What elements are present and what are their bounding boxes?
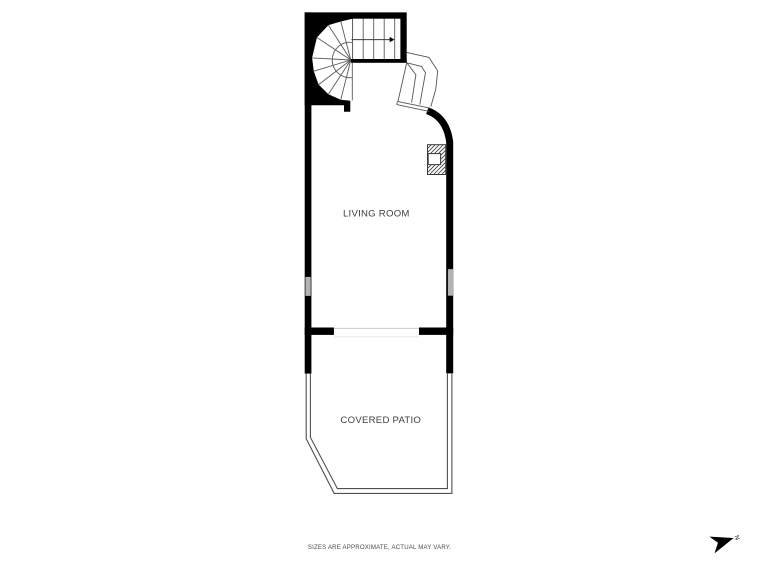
svg-text:LIVING ROOM: LIVING ROOM [343, 208, 410, 219]
svg-text:SIZES ARE APPROXIMATE, ACTUAL: SIZES ARE APPROXIMATE, ACTUAL MAY VARY. [308, 544, 451, 551]
svg-text:N: N [733, 535, 741, 542]
svg-text:COVERED PATIO: COVERED PATIO [340, 415, 421, 426]
